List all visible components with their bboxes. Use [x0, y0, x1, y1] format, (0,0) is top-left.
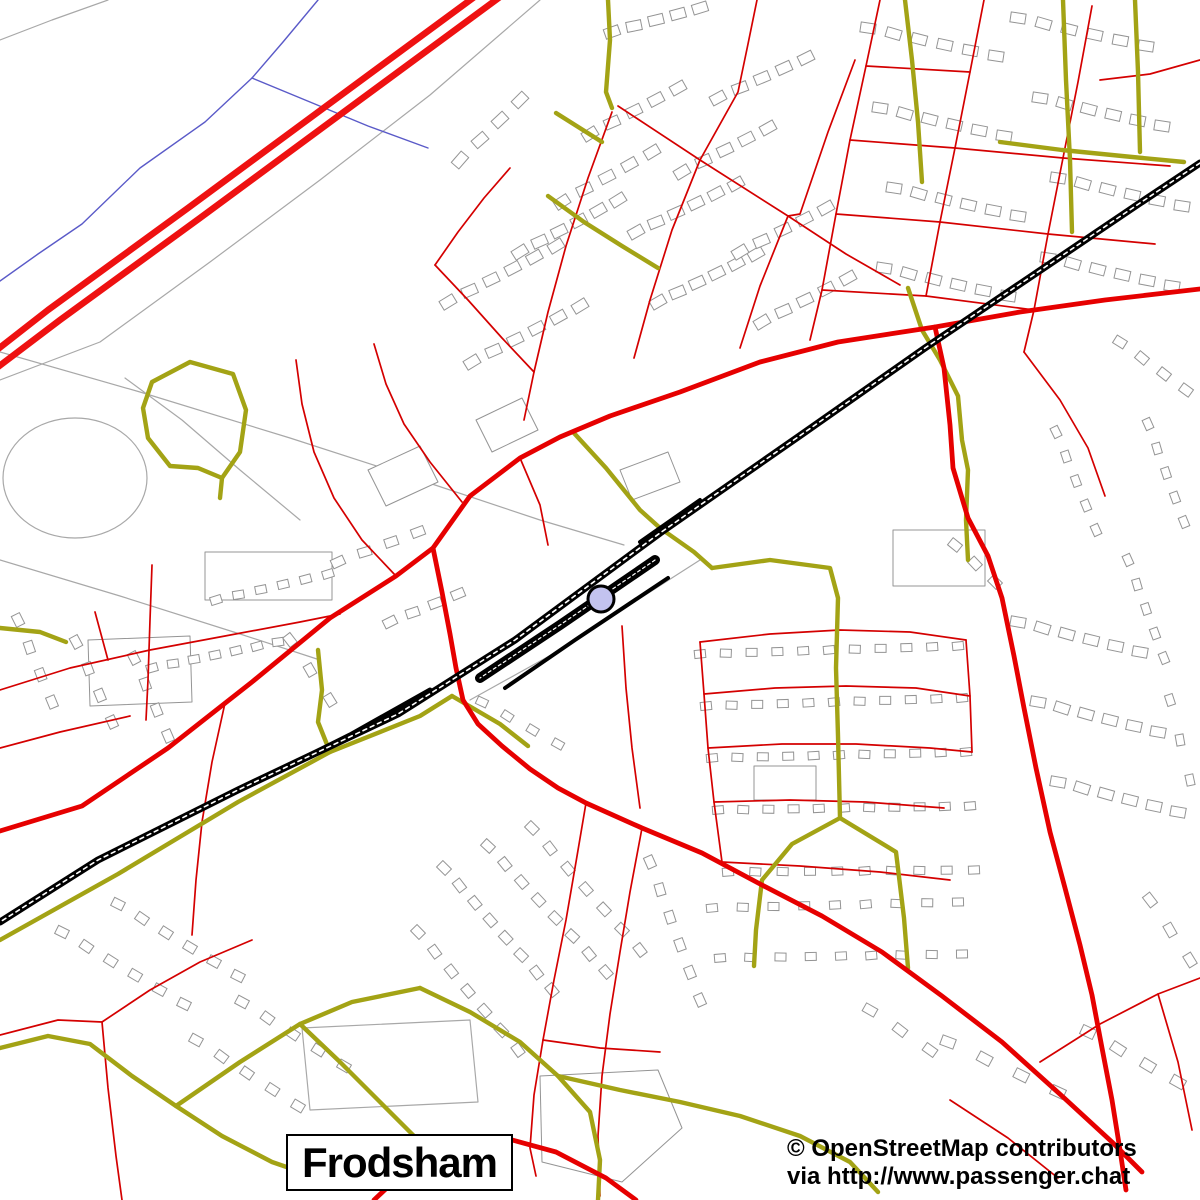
building-outline-layer — [88, 398, 985, 1182]
map-attribution: © OpenStreetMap contributors via http://… — [787, 1135, 1137, 1190]
motorway-layer — [0, 0, 504, 370]
station-marker[interactable] — [588, 586, 614, 612]
stream-layer — [0, 0, 428, 281]
map-svg — [0, 0, 1200, 1200]
attribution-line-2: via http://www.passenger.chat — [787, 1163, 1137, 1191]
major-road-layer — [0, 289, 1200, 1200]
attribution-line-1: © OpenStreetMap contributors — [787, 1135, 1137, 1163]
recreation-ground-outline — [3, 418, 147, 538]
building-layer — [11, 1, 1197, 1113]
map-canvas[interactable]: Frodsham © OpenStreetMap contributors vi… — [0, 0, 1200, 1200]
place-label: Frodsham — [286, 1134, 513, 1191]
place-label-text: Frodsham — [302, 1139, 497, 1187]
